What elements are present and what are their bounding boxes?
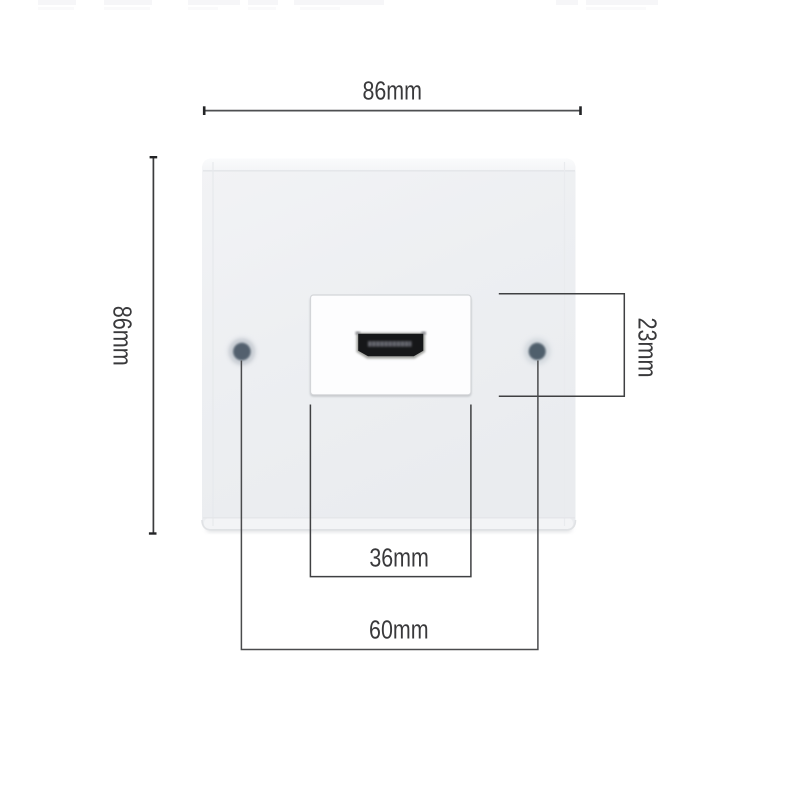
svg-text:86mm: 86mm	[362, 78, 422, 106]
svg-text:23mm: 23mm	[632, 318, 660, 378]
svg-text:60mm: 60mm	[369, 617, 429, 645]
svg-text:36mm: 36mm	[369, 545, 429, 573]
svg-text:86mm: 86mm	[108, 306, 136, 366]
